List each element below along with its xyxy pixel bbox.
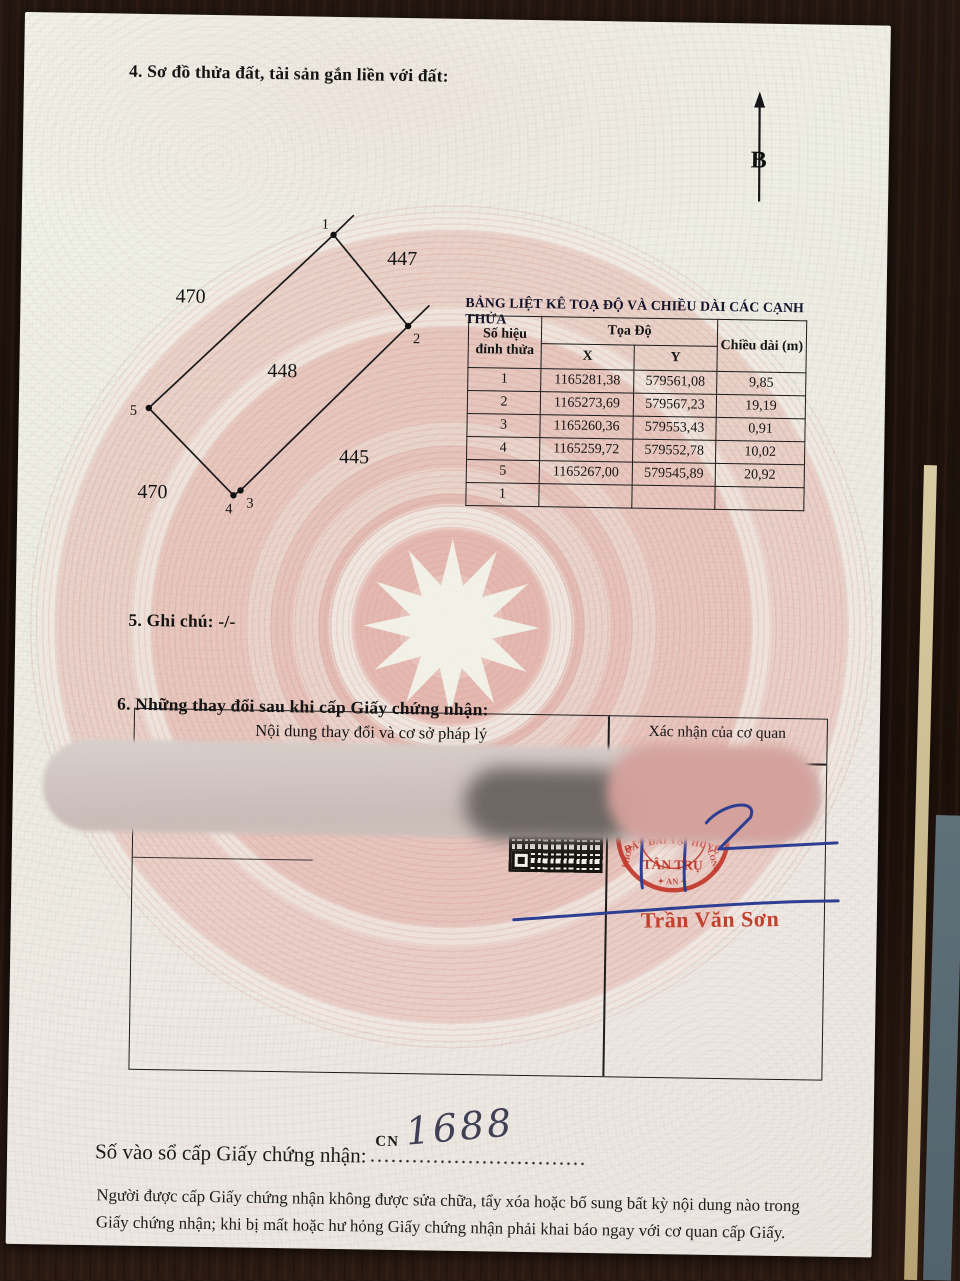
cell-x: 1165267,00 xyxy=(539,461,632,485)
floor-beyond-table xyxy=(923,815,960,1281)
plot-label-445: 445 xyxy=(339,446,369,468)
col-header-vertex: Số hiệu đỉnh thửa xyxy=(468,316,542,369)
photo-of-land-certificate: { "page": { "section4": { "title": "4. S… xyxy=(0,0,960,1280)
north-arrow: B xyxy=(738,89,780,206)
cell-y: 579561,08 xyxy=(634,370,717,394)
table-row: 1 xyxy=(466,482,804,510)
plot-label-470-upper: 470 xyxy=(175,285,205,307)
cell-vertex: 5 xyxy=(466,459,539,483)
vertex-label-4: 4 xyxy=(225,501,233,517)
parcel-diagram: 1 2 3 4 5 447 470 448 445 470 xyxy=(107,198,452,533)
cell-y xyxy=(632,485,715,509)
vertex-label-5: 5 xyxy=(130,403,138,419)
col-header-coords: Tọa Độ xyxy=(541,317,717,347)
coord-table: Số hiệu đỉnh thửa Tọa Độ Chiều dài (m) X… xyxy=(465,315,807,511)
cell-length: 0,91 xyxy=(716,417,805,441)
plot-label-448: 448 xyxy=(267,360,297,382)
cell-y: 579545,89 xyxy=(632,462,715,486)
boundary-line-3-2-ext xyxy=(241,302,430,493)
cell-x xyxy=(539,484,632,508)
dotted-leader xyxy=(368,1159,586,1166)
vertex-label-3: 3 xyxy=(246,496,254,512)
row-divider xyxy=(133,857,313,861)
cell-x: 1165260,36 xyxy=(540,415,633,439)
col-header-y: Y xyxy=(634,345,717,371)
boundary-line-5-1-ext xyxy=(149,212,354,411)
cell-y: 579567,23 xyxy=(633,393,716,417)
north-label: B xyxy=(751,147,767,173)
cell-length: 19,19 xyxy=(716,394,805,418)
registry-prefix: CN xyxy=(375,1134,399,1151)
plot-label-447: 447 xyxy=(387,248,417,270)
cell-x: 1165273,69 xyxy=(540,392,633,416)
cell-length: 20,92 xyxy=(715,463,804,487)
cell-length: 10,02 xyxy=(715,440,804,464)
certificate-page: 4. Sơ đồ thửa đất, tài sản gắn liền với … xyxy=(6,12,891,1257)
section5-note: 5. Ghi chú: -/- xyxy=(128,610,235,633)
changes-col2-header: Xác nhận của cơ quan xyxy=(608,722,827,743)
cell-vertex: 1 xyxy=(468,368,541,392)
registry-label: Số vào sổ cấp Giấy chứng nhận: xyxy=(95,1139,367,1167)
cell-vertex: 4 xyxy=(467,436,540,460)
col-header-length: Chiều dài (m) xyxy=(717,319,807,372)
signer-name: Trần Văn Sơn xyxy=(641,906,780,933)
cell-length xyxy=(715,486,804,510)
cell-vertex: 3 xyxy=(467,413,540,437)
cell-vertex: 1 xyxy=(466,482,539,506)
cell-vertex: 2 xyxy=(467,390,540,414)
cell-x: 1165281,38 xyxy=(541,369,634,393)
vertex-label-1: 1 xyxy=(322,217,330,233)
vertex-label-2: 2 xyxy=(413,331,421,347)
cell-x: 1165259,72 xyxy=(540,438,633,462)
plot-label-470-lower: 470 xyxy=(137,481,167,503)
cell-length: 9,85 xyxy=(717,371,806,395)
cell-y: 579553,43 xyxy=(633,416,716,440)
cell-y: 579552,78 xyxy=(633,439,716,463)
col-header-x: X xyxy=(541,344,634,370)
